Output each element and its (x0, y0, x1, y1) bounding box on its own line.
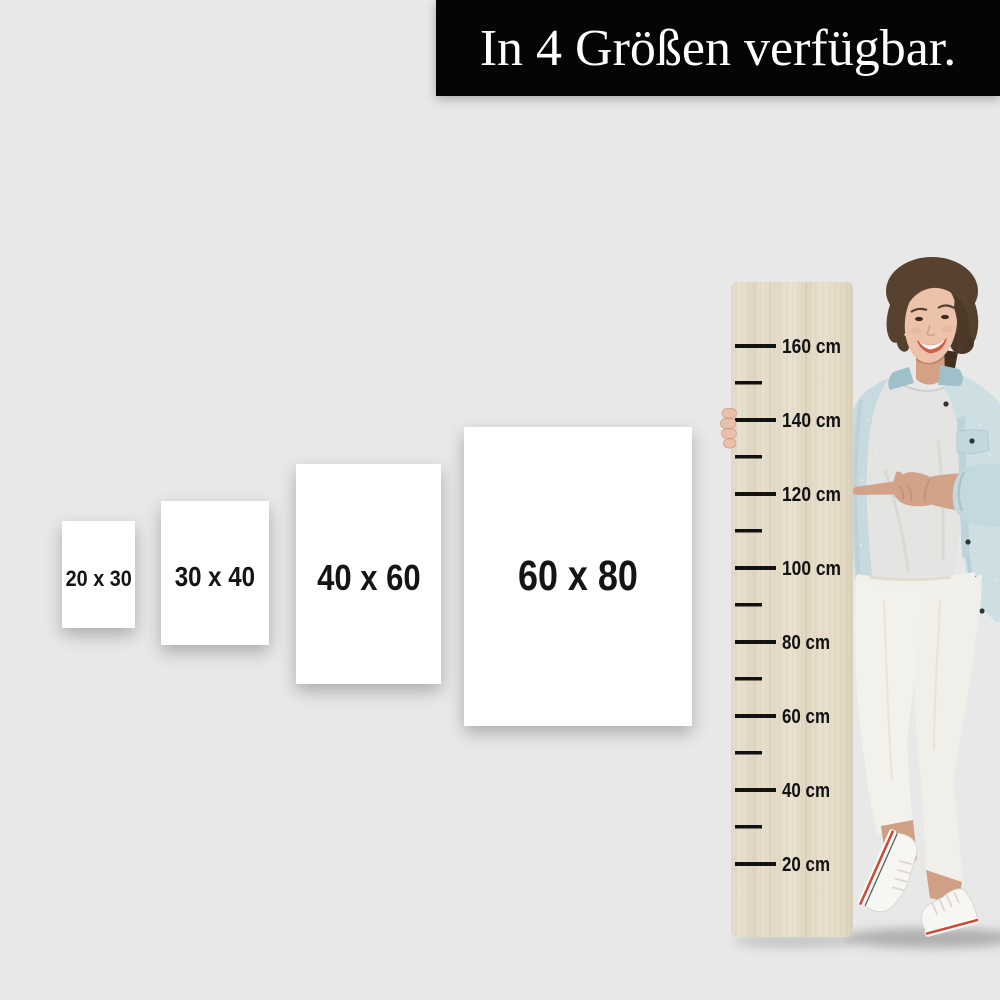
svg-text:140 cm: 140 cm (782, 410, 841, 432)
svg-text:80 cm: 80 cm (782, 632, 830, 654)
svg-text:60 cm: 60 cm (782, 706, 830, 728)
svg-text:160 cm: 160 cm (782, 336, 841, 358)
svg-text:100 cm: 100 cm (782, 558, 841, 580)
svg-text:120 cm: 120 cm (782, 484, 841, 506)
svg-text:20 cm: 20 cm (782, 854, 830, 876)
svg-text:40 cm: 40 cm (782, 780, 830, 802)
